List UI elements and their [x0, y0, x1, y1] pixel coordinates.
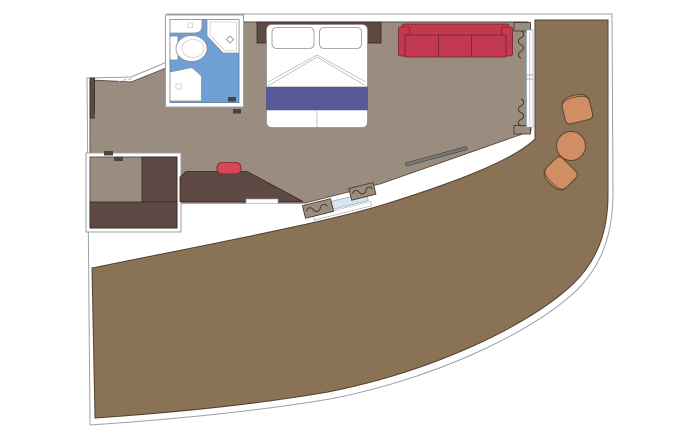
bathroom-door-mark-upper — [228, 97, 236, 102]
bathroom-door-mark-lower — [233, 109, 241, 114]
desk-chair — [217, 163, 241, 175]
pillow-left — [272, 28, 314, 49]
balcony-table — [557, 132, 586, 161]
wardrobe-alcove — [86, 151, 181, 232]
alcove-door-bracket-bottom — [114, 157, 123, 162]
wardrobe-low-unit — [90, 202, 177, 228]
double-bed — [257, 22, 381, 128]
window-strip — [246, 199, 278, 204]
floor-plan-canvas — [0, 0, 700, 433]
bathroom — [166, 15, 244, 114]
bed-runner — [267, 87, 368, 110]
alcove-door-bracket-top — [104, 151, 113, 156]
sofa-seat — [405, 35, 506, 57]
entry-door-leaf — [90, 78, 95, 118]
sofa-three-seat — [399, 24, 513, 57]
wardrobe-tall-unit — [142, 157, 177, 203]
vanity-sink — [170, 68, 202, 102]
pillow-right — [320, 28, 362, 49]
sink-counter — [170, 20, 202, 34]
